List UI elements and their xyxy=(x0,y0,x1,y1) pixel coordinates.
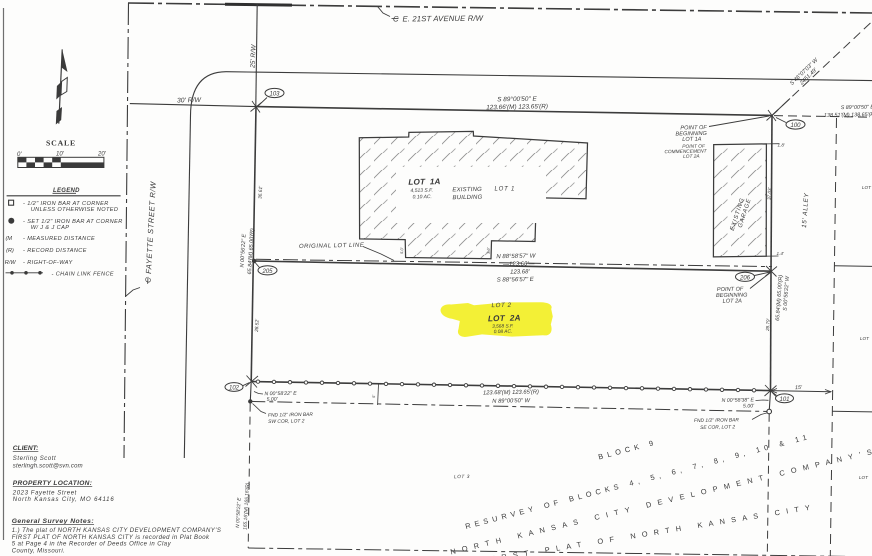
svg-text:N 88°58'57" W: N 88°58'57" W xyxy=(496,254,536,261)
svg-text:102: 102 xyxy=(229,386,240,392)
svg-text:R/W: R/W xyxy=(5,260,17,266)
svg-text:General Survey Notes:: General Survey Notes: xyxy=(12,518,94,525)
svg-text:LOT: LOT xyxy=(860,336,870,341)
svg-text:206: 206 xyxy=(739,275,751,281)
svg-text:10': 10' xyxy=(56,152,65,158)
svg-text:LOT: LOT xyxy=(859,475,869,480)
svg-text:28.79': 28.79' xyxy=(765,318,771,332)
svg-text:UNLESS OTHERWISE NOTED: UNLESS OTHERWISE NOTED xyxy=(31,207,119,213)
svg-text:Sterling Scott: Sterling Scott xyxy=(13,456,56,462)
svg-text:123.66'(M) 123.65'(R): 123.66'(M) 123.65'(R) xyxy=(486,103,548,111)
svg-text:FND 1/2" IRON BAR: FND 1/2" IRON BAR xyxy=(694,417,740,424)
svg-text:3.6': 3.6' xyxy=(486,247,491,254)
svg-text:2023 Fayette Street: 2023 Fayette Street xyxy=(12,490,77,496)
svg-text:30' R/W: 30' R/W xyxy=(177,97,202,105)
svg-text:37.03': 37.03' xyxy=(767,187,773,200)
svg-text:(R): (R) xyxy=(6,248,14,254)
svg-text:SE COR, LOT 2: SE COR, LOT 2 xyxy=(700,424,735,431)
svg-text:SW COR, LOT 2: SW COR, LOT 2 xyxy=(268,418,305,425)
svg-text:sterlingh.scott@svn.com: sterlingh.scott@svn.com xyxy=(13,463,83,469)
svg-text:LOT 2A: LOT 2A xyxy=(723,298,743,304)
svg-text:103: 103 xyxy=(269,92,280,98)
svg-text:- RECORD DISTANCE: - RECORD DISTANCE xyxy=(23,248,87,254)
svg-text:LOT: LOT xyxy=(862,185,872,190)
svg-text:28.52': 28.52' xyxy=(254,318,261,333)
svg-text:S 89°00'50" E: S 89°00'50" E xyxy=(841,104,872,111)
svg-text:BUILDING: BUILDING xyxy=(452,195,482,202)
svg-text:101: 101 xyxy=(779,397,789,403)
svg-text:15': 15' xyxy=(795,385,803,391)
svg-text:- CHAIN LINK FENCE: - CHAIN LINK FENCE xyxy=(52,272,115,278)
svg-text:5.0': 5.0' xyxy=(399,247,404,254)
svg-text:SCALE: SCALE xyxy=(46,139,76,148)
svg-text:123.68': 123.68' xyxy=(510,269,530,275)
svg-text:5 at Page 4 in the Recorder of: 5 at Page 4 in the Recorder of Deeds Off… xyxy=(12,542,172,548)
svg-text:- RIGHT-OF-WAY: - RIGHT-OF-WAY xyxy=(23,260,73,266)
svg-text:—123.66'—: —123.66'— xyxy=(502,261,536,268)
svg-text:- MEASURED DISTANCE: - MEASURED DISTANCE xyxy=(23,236,95,242)
svg-text:205: 205 xyxy=(261,269,273,275)
svg-text:138.51'(M) 138.65'(R): 138.51'(M) 138.65'(R) xyxy=(824,112,872,119)
svg-text:LOT 2: LOT 2 xyxy=(491,302,511,309)
svg-text:S 89°00'50" E: S 89°00'50" E xyxy=(497,95,537,104)
svg-text:County, Missouri.: County, Missouri. xyxy=(12,548,66,554)
svg-text:N 89°00'50" W: N 89°00'50" W xyxy=(492,398,530,405)
svg-text:LOT 1A: LOT 1A xyxy=(408,177,440,187)
svg-text:CLIENT:: CLIENT: xyxy=(13,445,39,452)
svg-text:(M: (M xyxy=(6,236,13,242)
svg-text:36.61': 36.61' xyxy=(258,185,265,199)
svg-text:100: 100 xyxy=(790,123,801,129)
svg-text:4,513 S.F.: 4,513 S.F. xyxy=(410,188,433,194)
svg-text:5.00': 5.00' xyxy=(743,403,755,409)
svg-text:FIRST PLAT OF NORTH KANSAS CIT: FIRST PLAT OF NORTH KANSAS CITY is recor… xyxy=(12,535,210,541)
svg-text:LOT 3: LOT 3 xyxy=(454,474,470,480)
svg-text:0.10 AC.: 0.10 AC. xyxy=(413,194,432,200)
svg-text:W/ J & J CAP: W/ J & J CAP xyxy=(31,225,70,231)
svg-text:PROPERTY LOCATION:: PROPERTY LOCATION: xyxy=(13,480,92,487)
svg-text:0.08 AC.: 0.08 AC. xyxy=(494,329,513,335)
svg-text:5': 5' xyxy=(371,395,376,398)
svg-text:LOT 1: LOT 1 xyxy=(495,187,516,193)
svg-text:EXISTING: EXISTING xyxy=(452,187,482,194)
svg-text:LOT 2A: LOT 2A xyxy=(488,313,521,323)
svg-text:E. 21ST AVENUE R/W: E. 21ST AVENUE R/W xyxy=(402,14,483,24)
svg-text:1.8': 1.8' xyxy=(778,143,785,148)
svg-text:20': 20' xyxy=(97,152,107,158)
svg-text:North Kansas City, MO 64116: North Kansas City, MO 64116 xyxy=(13,497,115,503)
svg-text:LOT 1A: LOT 1A xyxy=(682,137,702,143)
svg-text:LOT 2A: LOT 2A xyxy=(683,154,700,160)
svg-text:S 88°56'57" E: S 88°56'57" E xyxy=(497,277,535,284)
svg-text:1.) The plat of NORTH KANSAS C: 1.) The plat of NORTH KANSAS CITY DEVELO… xyxy=(12,528,222,534)
svg-text:123.68'(M) 123.65'(R): 123.68'(M) 123.65'(R) xyxy=(483,389,539,396)
svg-text:1.4': 1.4' xyxy=(777,251,784,256)
svg-text:FND 1/2" IRON BAR: FND 1/2" IRON BAR xyxy=(268,412,314,419)
